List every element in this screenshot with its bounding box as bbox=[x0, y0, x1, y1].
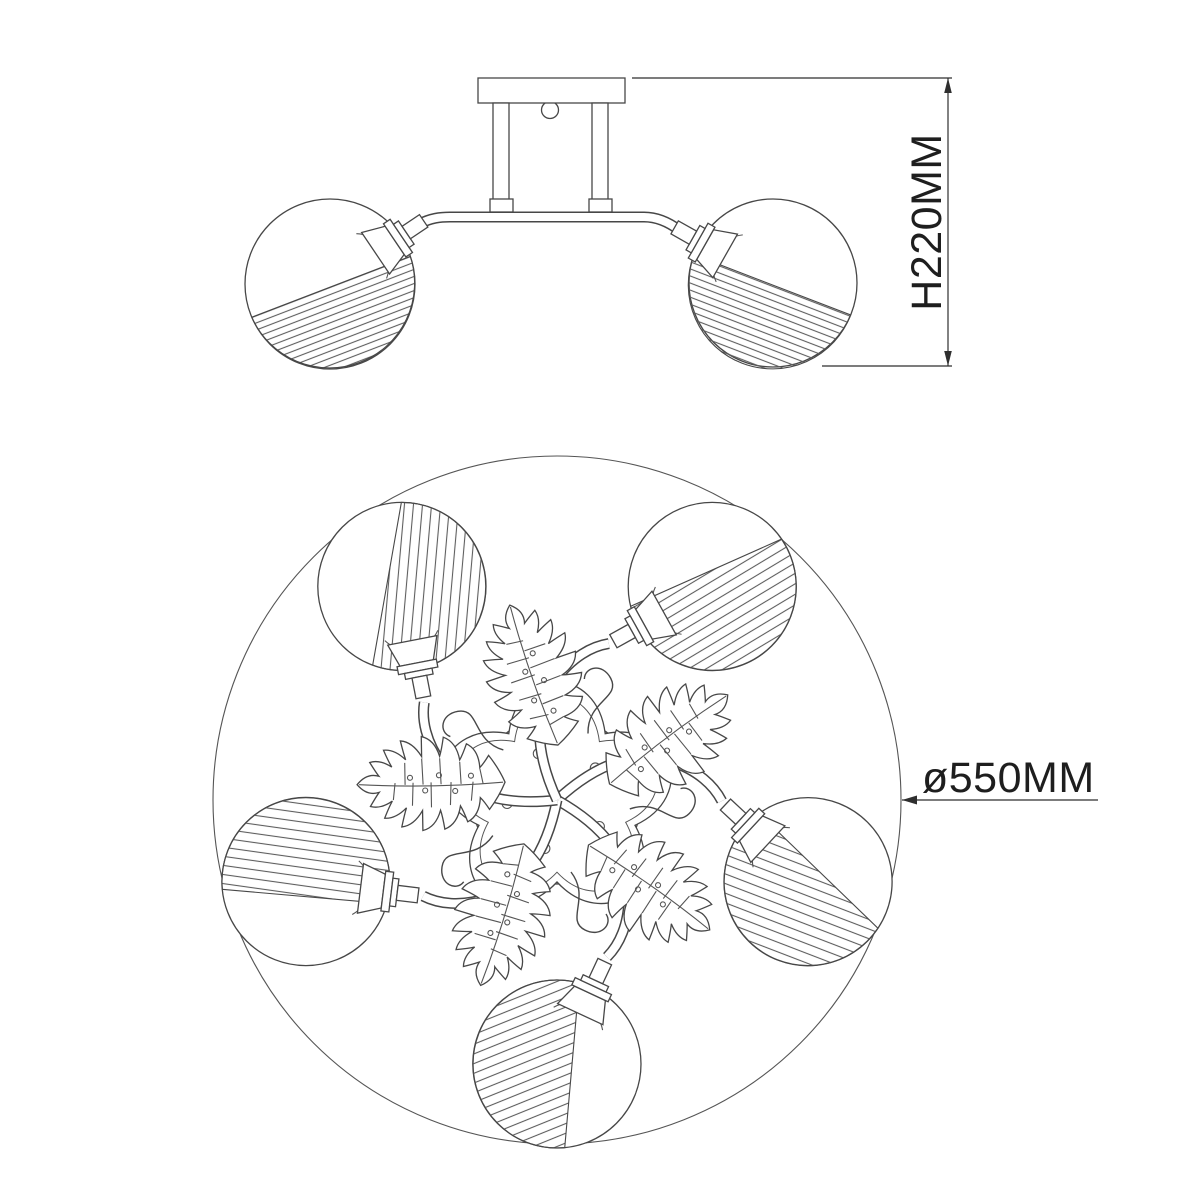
height-dimension-label: H220MM bbox=[903, 133, 951, 310]
rod-foot-right bbox=[589, 199, 612, 212]
plan-shade-right bbox=[689, 785, 892, 1001]
plan-shade-top-left bbox=[318, 501, 500, 702]
side-shade-right bbox=[664, 199, 857, 393]
plan-shade-bottom bbox=[466, 950, 641, 1149]
mounting-rod-right bbox=[592, 103, 608, 200]
ceiling-light-dimension-drawing: H220MM bbox=[0, 0, 1200, 1200]
side-arm-bar bbox=[419, 217, 679, 230]
ceiling-canopy-plate bbox=[478, 78, 625, 103]
technical-drawing-page: H220MM bbox=[0, 0, 1200, 1200]
plan-shade-top-right bbox=[600, 502, 823, 697]
diameter-dimension-label: ø550MM bbox=[922, 754, 1095, 802]
plan-view bbox=[213, 456, 901, 1149]
mounting-rod-left bbox=[493, 103, 509, 200]
rod-foot-left bbox=[490, 199, 513, 212]
diameter-dimension: ø550MM bbox=[902, 754, 1098, 805]
side-view: H220MM bbox=[245, 78, 952, 393]
canopy-screw bbox=[542, 102, 559, 119]
